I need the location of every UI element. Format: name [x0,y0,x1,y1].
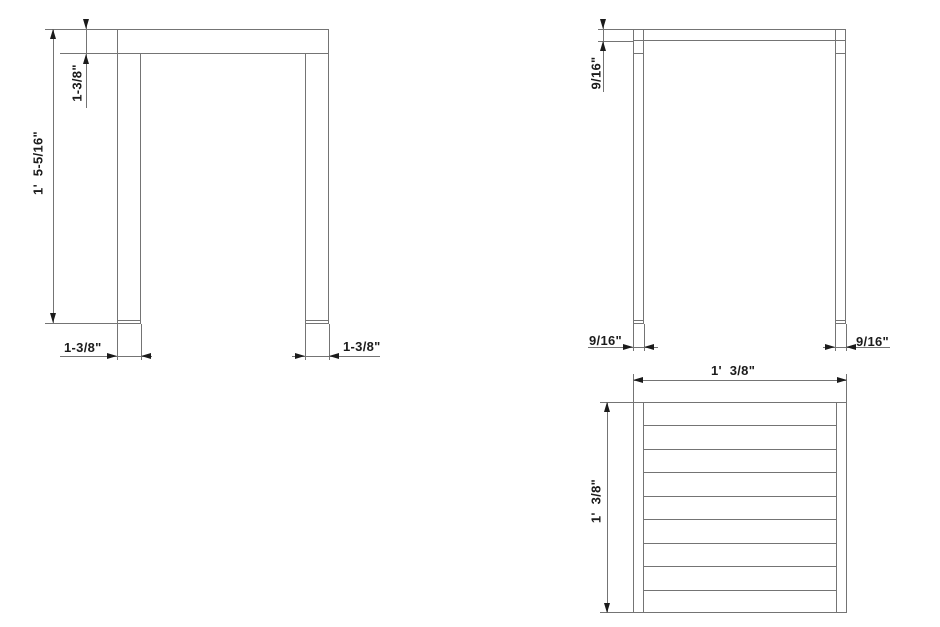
top-slat-divider [644,519,836,520]
top-slat-divider [644,543,836,544]
front-leg-right-label: 1-3/8" [343,340,381,353]
side-leg-right [835,29,846,324]
front-thickness-label: 1-3/8" [71,64,84,102]
front-foot-line-right [306,320,328,321]
top-rail-line-right [836,402,837,613]
dim-arrow [50,29,56,39]
dim-arrow [600,19,606,29]
dim-arrow [600,41,606,51]
side-leg-left [633,29,644,324]
dim-arrow [50,313,56,323]
side-joint-line-left [634,53,643,54]
front-height-label: 1' 5-5/16" [32,131,45,195]
side-leg-right-label: 9/16" [856,335,889,348]
dim-line-front-leg-left [60,356,152,357]
dim-arrow [837,377,847,383]
dim-line-top-width [633,380,847,381]
top-slat-divider [644,590,836,591]
front-tabletop [117,29,329,54]
side-thickness-label: 9/16" [590,57,603,90]
dim-line-front-thickness [86,20,87,108]
dim-arrow [329,353,339,359]
front-foot-line-left [118,320,140,321]
drawing-canvas: 1' 5-5/16" 1-3/8" 1-3/8" 1-3/8" [0,0,940,627]
top-slat-divider [644,449,836,450]
top-slat-divider [644,472,836,473]
dim-line-top-depth [607,402,608,613]
front-leg-left-label: 1-3/8" [64,341,102,354]
side-joint-line-right [836,53,845,54]
side-foot-line-right [836,320,845,321]
dim-arrow [295,353,305,359]
top-slat-divider [644,566,836,567]
ext-line [117,324,118,360]
ext-line-floor [45,323,117,324]
top-view-slats [644,402,836,613]
top-depth-label: 1' 3/8" [590,479,603,523]
dim-line-front-height [53,29,54,323]
dim-arrow [604,603,610,613]
top-width-label: 1' 3/8" [711,364,755,377]
dim-arrow [644,344,654,350]
dim-arrow [107,353,117,359]
side-top-slat [633,29,846,41]
dim-arrow [83,19,89,29]
dim-arrow [604,402,610,412]
top-slat-divider [644,425,836,426]
dim-arrow [83,54,89,64]
dim-arrow [623,344,633,350]
dim-arrow [141,353,151,359]
front-leg-right [305,53,329,324]
dim-arrow [825,344,835,350]
dim-arrow [846,344,856,350]
dim-arrow [633,377,643,383]
side-leg-left-label: 9/16" [589,334,622,347]
side-foot-line-left [634,320,643,321]
ext-line [305,324,306,360]
front-leg-left [117,53,141,324]
top-slat-divider [644,496,836,497]
